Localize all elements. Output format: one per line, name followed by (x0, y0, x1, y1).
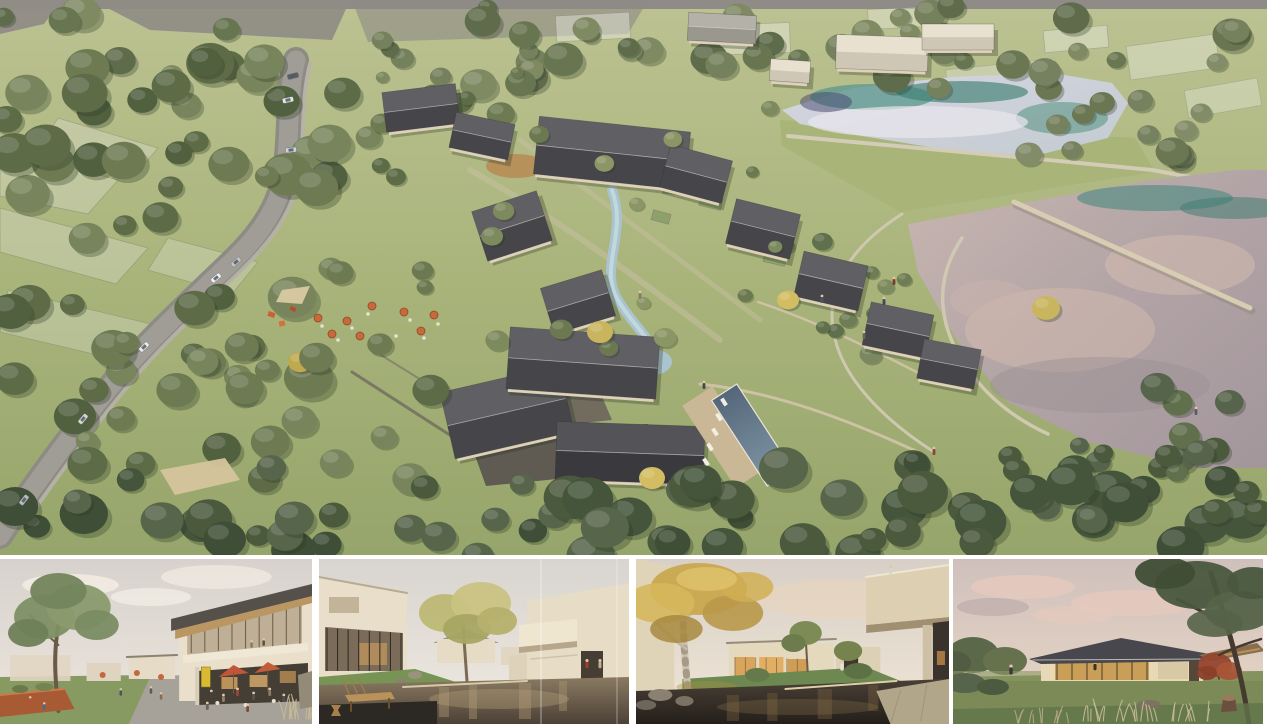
column (923, 625, 932, 689)
bg-building (10, 655, 70, 681)
rock (408, 671, 422, 679)
village-house (687, 12, 761, 50)
village-house (835, 34, 932, 77)
pink-cloud (971, 575, 1075, 599)
village-house (506, 327, 664, 406)
rock (648, 689, 672, 701)
panel-pavilion-render (953, 559, 1263, 724)
bg-building (87, 663, 121, 681)
rock (675, 696, 693, 706)
panel-pond-courtyard-render (319, 559, 629, 724)
main-render-svg (0, 0, 1267, 555)
rock (1137, 700, 1161, 710)
panel-1-svg (0, 559, 312, 724)
shop-sign (201, 667, 210, 687)
shrub (977, 679, 1009, 695)
car (285, 147, 296, 153)
person-standing (1009, 665, 1012, 675)
rock (636, 700, 656, 710)
village-house (922, 24, 998, 56)
stone-wall (298, 671, 312, 709)
person-walking (840, 661, 843, 671)
bg-tree (983, 647, 1027, 675)
aerial-masterplan-render (0, 0, 1267, 555)
panel-dusk-courtyard-render (636, 559, 949, 724)
panel-4-svg (953, 559, 1263, 724)
panel-3-svg (636, 559, 949, 724)
panel-2-svg (319, 559, 629, 724)
panel-plaza-render (0, 559, 312, 724)
render-board (0, 0, 1267, 724)
village-house (769, 59, 815, 90)
person-on-roof (889, 565, 892, 574)
